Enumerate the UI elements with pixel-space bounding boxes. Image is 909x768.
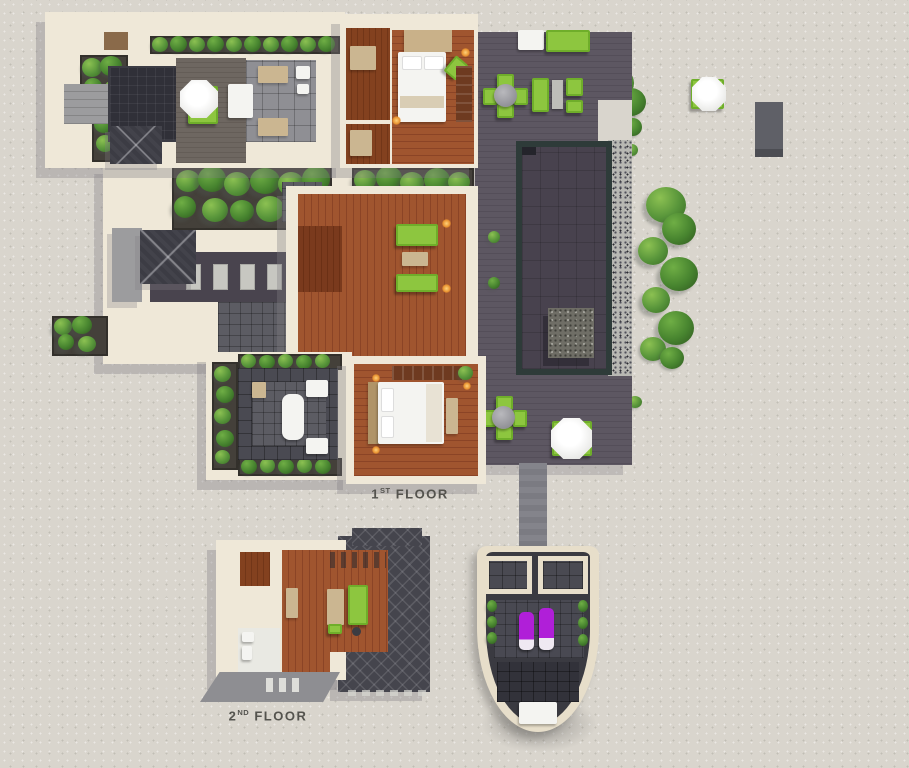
hedge-bush — [300, 37, 316, 52]
garden-bush — [315, 354, 330, 368]
purple-lounger — [519, 612, 534, 650]
boat-cabin-right — [538, 556, 588, 594]
hedge-bush — [318, 36, 335, 52]
daybed-green — [546, 30, 590, 52]
garden-bush — [259, 355, 275, 369]
sun-lounger-green — [566, 78, 583, 96]
garden-bush — [214, 408, 231, 424]
sofa-green — [396, 224, 438, 246]
walkway-stone — [266, 678, 273, 692]
pergola-shadow — [330, 552, 386, 568]
stepping-stone — [213, 264, 228, 290]
gray-mat — [755, 102, 783, 157]
tree-canopy — [638, 237, 668, 265]
hedge-bush — [226, 37, 242, 52]
lounger-cushion — [566, 100, 583, 113]
dining-table-round — [494, 84, 517, 107]
bath-fixture — [242, 632, 254, 642]
swim-platform — [519, 702, 557, 724]
garden-bush — [198, 166, 226, 192]
floor-word: FLOOR — [396, 486, 449, 501]
garden-bush — [230, 200, 254, 222]
tree-canopy — [642, 287, 670, 313]
garden-bush — [241, 459, 257, 474]
garden-bush — [78, 336, 96, 352]
boat-plant — [578, 617, 588, 629]
garden-bush — [315, 459, 331, 474]
second-floor-roof-tab — [352, 528, 422, 546]
boat-cabin-left — [484, 556, 532, 594]
garden-bush — [174, 196, 196, 218]
closet-room-floor — [346, 28, 390, 120]
stool — [352, 627, 361, 636]
hedge-bush — [244, 36, 261, 52]
dining-table-round — [492, 406, 515, 429]
garden-bush — [72, 316, 92, 334]
garden-bed-left — [52, 316, 108, 356]
hedge-bush — [281, 36, 298, 52]
wardrobe-strip — [456, 66, 472, 122]
terrace-bench — [258, 66, 288, 83]
terrace-sofa-white — [228, 84, 253, 118]
floor-word: FLOOR — [254, 708, 307, 723]
bath-fixture — [242, 646, 252, 660]
bed-double — [378, 382, 444, 444]
stepping-stone — [240, 264, 255, 290]
pool-skimmer — [522, 147, 536, 155]
boat-aft-deck — [497, 662, 579, 702]
floor-ordinal: ND — [237, 708, 249, 717]
garden-bush — [256, 196, 284, 222]
boat-plant — [487, 616, 497, 628]
floor-lamp — [442, 284, 451, 293]
terrace-hedge — [150, 36, 340, 54]
floor-mat-green — [328, 624, 342, 634]
floor-number: 1 — [371, 486, 380, 501]
bath-fixture — [296, 66, 310, 79]
tree-canopy — [660, 257, 698, 291]
boat-plants-left — [487, 600, 497, 646]
sun-lounger-green — [532, 78, 549, 112]
bedroom-bench — [446, 398, 458, 434]
garden-bush — [202, 198, 228, 222]
second-floor-bath — [238, 628, 280, 672]
garden-bush — [297, 458, 312, 473]
pillow — [424, 56, 444, 70]
side-platform — [112, 228, 142, 302]
walkway-stone — [292, 678, 299, 692]
garden-bush — [224, 172, 250, 196]
closet-strip — [392, 366, 462, 380]
terrace-bench — [258, 118, 288, 136]
hedge-bush — [189, 37, 205, 52]
bedside-lamp — [461, 48, 470, 57]
boat-plants-right — [577, 600, 589, 648]
floor-ordinal: ST — [380, 486, 391, 495]
closet-bench — [350, 46, 376, 70]
bed-throw — [400, 96, 444, 108]
garden-bush — [260, 458, 275, 473]
garden-bush — [241, 354, 256, 368]
deck-bush — [488, 277, 500, 289]
bedside-lamp — [372, 446, 380, 454]
bath-bench — [306, 438, 328, 454]
garden-bush — [296, 355, 312, 369]
bath-bench — [306, 380, 328, 397]
bath-stool — [252, 382, 266, 398]
boat-plant — [487, 632, 497, 644]
corner-plant — [458, 366, 473, 380]
bath-garden-left — [212, 362, 238, 470]
umbrella-icon — [551, 418, 592, 459]
garden-bush — [278, 354, 293, 368]
boat-plant — [578, 600, 588, 612]
purple-lounger — [539, 608, 554, 650]
jetty-walkway — [519, 463, 547, 553]
pillow — [381, 388, 394, 412]
desk — [327, 589, 344, 625]
bedside-lamp — [372, 374, 380, 382]
second-floor-label: 2ND FLOOR — [198, 708, 338, 724]
garden-bush — [250, 168, 280, 194]
bath-fixture — [297, 84, 309, 94]
bath-garden-bottom — [238, 458, 342, 476]
sofa-green — [396, 274, 438, 292]
tree-canopy — [658, 311, 694, 345]
coffee-table — [402, 252, 428, 266]
first-floor-label: 1ST FLOOR — [340, 486, 480, 502]
garden-bush — [215, 450, 230, 464]
garden-bush — [176, 170, 200, 192]
deck-sand-notch — [598, 100, 632, 143]
garden-bush — [214, 366, 231, 382]
garden-bush — [216, 430, 234, 447]
garden-bush — [58, 334, 74, 350]
tree-canopy — [662, 213, 696, 245]
hedge-bush — [170, 36, 187, 52]
hedge-bush — [263, 37, 279, 52]
second-floor-entry — [240, 552, 270, 586]
garden-bush — [82, 58, 102, 77]
deck-bench-white — [518, 30, 544, 50]
corner-lamp — [463, 382, 471, 390]
bed-double — [398, 52, 446, 122]
sofa-green — [348, 585, 368, 625]
walkway-stone — [279, 678, 286, 692]
bathtub — [282, 394, 304, 440]
terrace-pyramid-roof — [110, 126, 162, 164]
lounger-mat — [552, 80, 563, 109]
bed-throw — [426, 384, 442, 442]
garden-bush — [216, 386, 234, 403]
boat-plant — [578, 634, 588, 646]
deck-bush — [488, 231, 500, 243]
tree-canopy — [660, 347, 684, 369]
pillow — [381, 416, 394, 438]
hedge-bush — [207, 36, 224, 52]
floor-lamp — [442, 219, 451, 228]
headboard-panel — [404, 30, 452, 52]
second-floor-hall — [282, 652, 330, 672]
floor-plan-scene: 1ST FLOOR 2ND FLOOR — [0, 0, 909, 768]
dining-chair — [513, 410, 527, 427]
pool-stone-platform — [548, 308, 594, 358]
entry-pavilion-roof — [140, 230, 196, 284]
cabinet — [286, 588, 298, 618]
living-porch — [298, 226, 342, 292]
garden-bush — [54, 318, 72, 335]
boat-plant — [487, 600, 497, 612]
terrace-planter-box — [104, 32, 128, 50]
bedside-lamp — [392, 116, 401, 125]
garden-bush — [278, 459, 294, 474]
stepping-stone — [267, 264, 282, 290]
hedge-bush — [152, 37, 168, 52]
side-room-bench — [350, 130, 372, 156]
roof-edge-pavers — [348, 690, 430, 696]
tree-cluster-right — [634, 185, 704, 370]
pillow — [402, 56, 422, 70]
stair-landing — [64, 84, 108, 124]
